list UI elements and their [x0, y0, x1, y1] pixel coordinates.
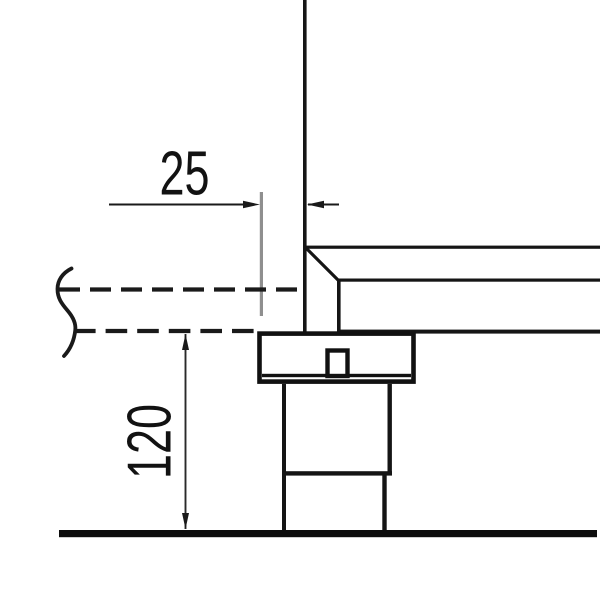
svg-text:120: 120	[116, 404, 185, 479]
svg-text:25: 25	[160, 140, 210, 209]
